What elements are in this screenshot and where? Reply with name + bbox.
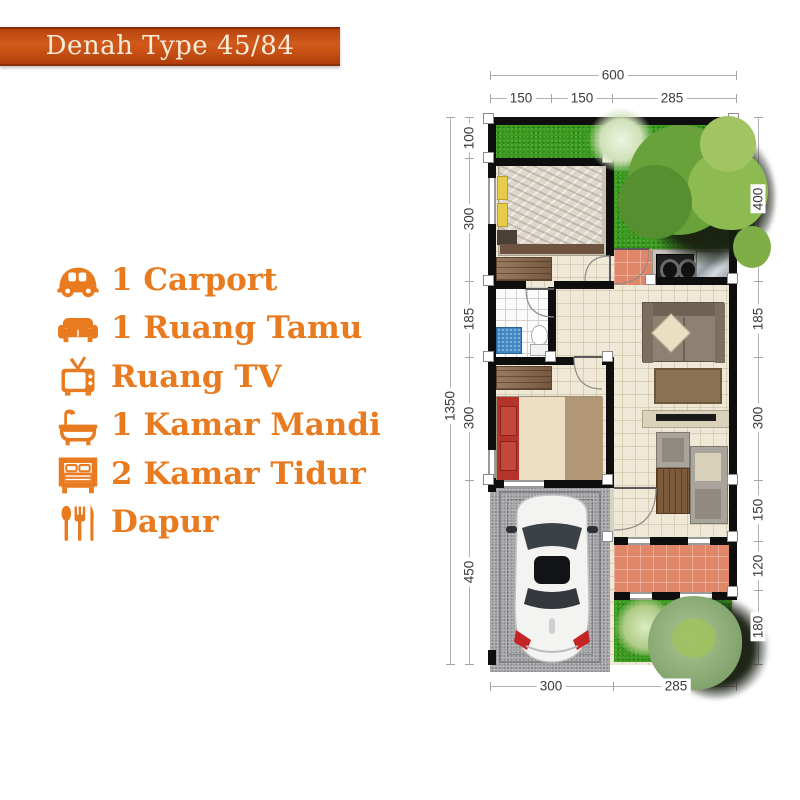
car-icon (45, 257, 111, 303)
legend-item-carport: 1 Carport (45, 256, 381, 305)
dim-left-3: 185 (462, 305, 477, 334)
bed-1-pillow (497, 176, 508, 200)
dim-left-total: 1350 (443, 388, 458, 424)
legend-item-kamar-tidur: 2 Kamar Tidur (45, 450, 381, 499)
bed-2 (496, 396, 602, 482)
floor-plan-page: Denah Type 45/84 1 Carport (0, 0, 800, 800)
wall-porch-bottom-a (614, 592, 630, 600)
tree-back-foliage (700, 116, 756, 172)
dining-bench (690, 446, 728, 524)
wall-hall-top (554, 281, 614, 289)
dim-right-5: 120 (751, 552, 766, 581)
bathtub-icon (45, 403, 111, 449)
wall-kitchen-bottom (650, 277, 737, 285)
bed-icon (45, 451, 111, 497)
dim-left-5: 450 (462, 558, 477, 587)
sofa-icon (45, 306, 111, 352)
window-bedroom1 (488, 178, 496, 224)
bed-1-pillow (497, 203, 508, 227)
coffee-table-rug (654, 368, 722, 404)
page-title: Denah Type 45/84 (46, 31, 295, 61)
column (602, 474, 613, 485)
legend-label: 2 Kamar Tidur (111, 459, 366, 490)
front-porch (614, 543, 732, 592)
dim-right-4: 150 (751, 496, 766, 525)
dim-right-3: 300 (751, 404, 766, 433)
column (483, 474, 494, 485)
column (483, 351, 494, 362)
tree-back-foliage (618, 165, 692, 239)
legend-item-kamar-mandi: 1 Kamar Mandi (45, 402, 381, 451)
dim-top-2: 150 (568, 91, 597, 106)
sofa (642, 302, 724, 362)
legend-item-ruang-tamu: 1 Ruang Tamu (45, 305, 381, 354)
column (602, 531, 613, 542)
utensils-icon (45, 500, 111, 546)
dim-bottom-1: 300 (537, 679, 566, 694)
tree-back-foliage (733, 226, 771, 268)
column (483, 152, 494, 163)
column (545, 351, 556, 362)
shower-mat (496, 327, 522, 354)
dining-table (656, 468, 690, 514)
wall-carport-stub (488, 650, 496, 665)
dining-chair (656, 432, 690, 468)
wall-bedroom2-right (606, 365, 614, 482)
dresser-bedroom-1 (496, 257, 552, 281)
dim-left-2: 300 (462, 205, 477, 234)
legend-label: Dapur (111, 507, 219, 538)
window-terrace-2 (688, 537, 710, 545)
column (602, 351, 613, 362)
column (483, 113, 494, 124)
legend: 1 Carport 1 Ruang Tamu (45, 256, 381, 547)
tv-icon (45, 354, 111, 400)
dim-top-total: 600 (599, 68, 628, 83)
dim-right-6: 180 (751, 613, 766, 642)
legend-label: Ruang TV (111, 362, 282, 393)
column (727, 474, 738, 485)
bed-1-footboard (500, 244, 604, 254)
legend-label: 1 Ruang Tamu (111, 313, 362, 344)
title-banner: Denah Type 45/84 (0, 27, 340, 66)
wall-terrace-bottom-a (614, 537, 628, 545)
tv (656, 414, 716, 421)
column (645, 274, 656, 285)
dresser-bedroom-2 (496, 366, 552, 390)
legend-label: 1 Carport (111, 265, 277, 296)
car (504, 490, 600, 668)
column (483, 275, 494, 286)
tree-front-foliage (672, 618, 716, 658)
wall-bedroom1-right (606, 158, 614, 256)
column (727, 531, 738, 542)
wall-left (488, 117, 496, 492)
window-terrace-1 (628, 537, 650, 545)
dim-left-1: 100 (462, 124, 477, 153)
window-bedroom2-bottom (504, 480, 544, 488)
column (727, 273, 738, 284)
nightstand (497, 230, 517, 245)
wall-terrace-bottom-b (650, 537, 688, 545)
dim-top-1: 150 (507, 91, 536, 106)
dim-top-3: 285 (658, 91, 687, 106)
legend-item-ruang-tv: Ruang TV (45, 353, 381, 402)
legend-item-dapur: Dapur (45, 499, 381, 548)
legend-label: 1 Kamar Mandi (111, 410, 381, 441)
wall-bathroom-right (548, 287, 556, 359)
wall-bedroom2-top (488, 357, 574, 365)
dim-right-2: 185 (751, 305, 766, 334)
dim-bottom-2: 285 (662, 679, 691, 694)
dim-left-4: 300 (462, 404, 477, 433)
dim-right-1: 400 (751, 185, 766, 214)
column (727, 586, 738, 597)
